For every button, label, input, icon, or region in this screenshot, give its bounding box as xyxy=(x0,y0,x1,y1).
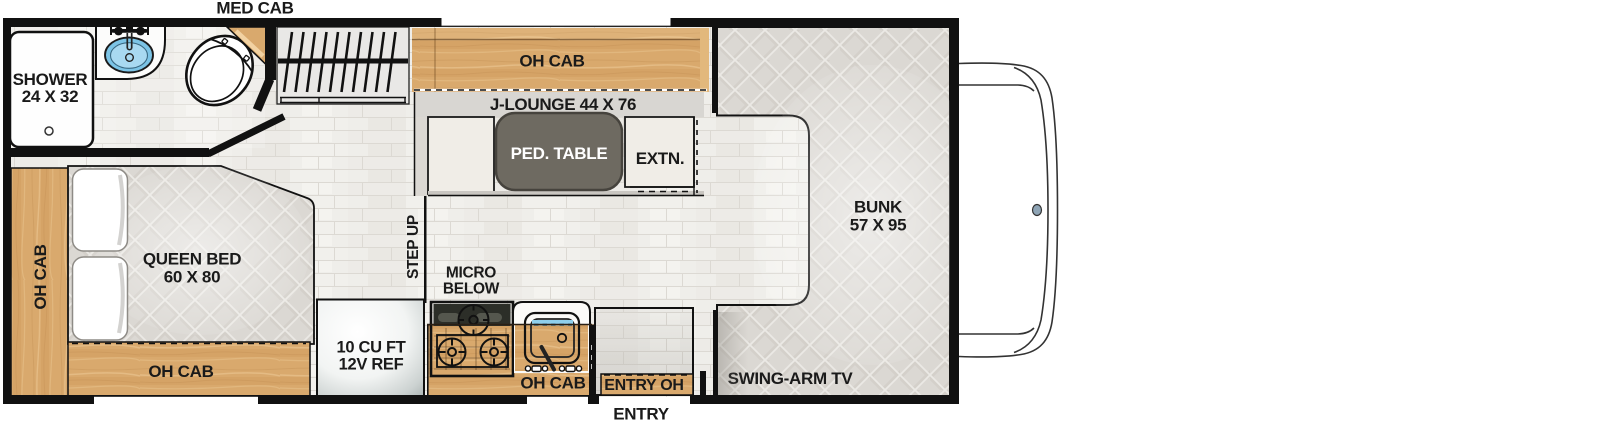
svg-text:57 X 95: 57 X 95 xyxy=(850,216,907,235)
svg-text:12V REF: 12V REF xyxy=(339,356,404,374)
svg-text:ENTRY: ENTRY xyxy=(613,405,669,424)
svg-text:MED CAB: MED CAB xyxy=(216,0,293,18)
svg-text:24 X 32: 24 X 32 xyxy=(22,87,79,106)
svg-text:OH CAB: OH CAB xyxy=(520,374,585,393)
svg-text:STEP UP: STEP UP xyxy=(405,215,422,279)
svg-text:QUEEN BED: QUEEN BED xyxy=(143,250,241,269)
svg-text:EXTN.: EXTN. xyxy=(636,149,685,168)
svg-text:BUNK: BUNK xyxy=(854,198,903,217)
svg-text:BELOW: BELOW xyxy=(443,281,500,298)
svg-text:OH CAB: OH CAB xyxy=(31,244,50,309)
svg-text:60 X 80: 60 X 80 xyxy=(164,268,221,287)
svg-text:OH CAB: OH CAB xyxy=(519,52,584,71)
svg-text:J-LOUNGE 44 X 76: J-LOUNGE 44 X 76 xyxy=(490,95,636,114)
svg-text:ENTRY OH: ENTRY OH xyxy=(604,377,683,394)
svg-text:OH CAB: OH CAB xyxy=(148,362,213,381)
svg-text:10 CU FT: 10 CU FT xyxy=(336,339,405,357)
svg-text:MICRO: MICRO xyxy=(446,265,496,282)
svg-text:PED. TABLE: PED. TABLE xyxy=(511,144,608,163)
